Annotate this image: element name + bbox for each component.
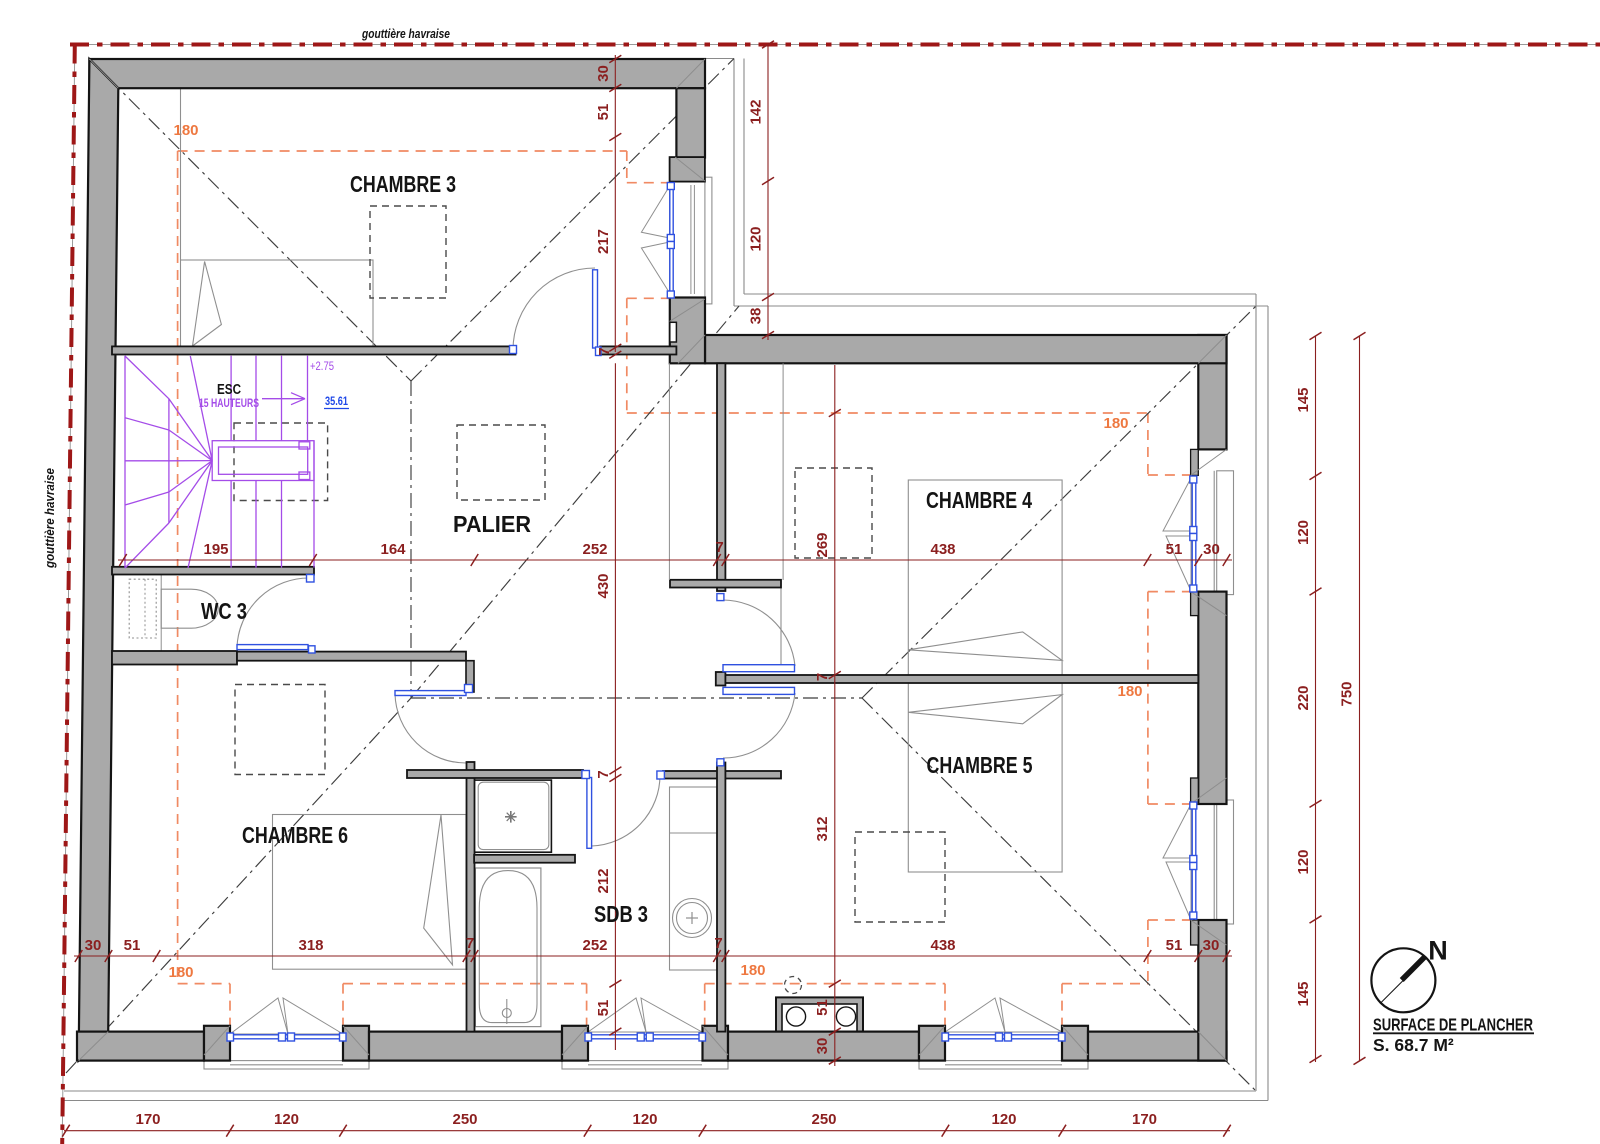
svg-text:195: 195	[203, 541, 228, 558]
svg-text:N: N	[1428, 936, 1448, 966]
svg-text:30: 30	[814, 1038, 831, 1055]
svg-text:430: 430	[595, 573, 612, 598]
svg-text:170: 170	[135, 1111, 160, 1128]
svg-text:38: 38	[748, 308, 765, 325]
svg-text:750: 750	[1339, 681, 1356, 706]
svg-text:120: 120	[274, 1111, 299, 1128]
svg-text:212: 212	[595, 868, 612, 893]
svg-text:30: 30	[1203, 541, 1220, 558]
svg-text:51: 51	[814, 999, 831, 1016]
svg-text:180: 180	[740, 962, 765, 979]
svg-text:252: 252	[582, 937, 607, 954]
svg-text:145: 145	[1295, 981, 1312, 1006]
svg-text:CHAMBRE 5: CHAMBRE 5	[927, 752, 1033, 778]
svg-text:180: 180	[1103, 415, 1128, 432]
svg-text:318: 318	[298, 937, 323, 954]
svg-text:252: 252	[582, 541, 607, 558]
svg-text:CHAMBRE 4: CHAMBRE 4	[926, 487, 1032, 513]
svg-text:7: 7	[715, 539, 723, 556]
svg-text:120: 120	[1295, 520, 1312, 545]
svg-text:51: 51	[1166, 937, 1183, 954]
svg-text:250: 250	[811, 1111, 836, 1128]
svg-text:180: 180	[173, 122, 198, 139]
svg-text:gouttière havraise: gouttière havraise	[361, 26, 450, 41]
svg-text:7: 7	[595, 770, 612, 778]
svg-text:120: 120	[1295, 849, 1312, 874]
svg-text:145: 145	[1295, 387, 1312, 412]
svg-text:217: 217	[595, 229, 612, 254]
svg-text:+2.75: +2.75	[310, 361, 334, 373]
svg-text:51: 51	[1166, 541, 1183, 558]
svg-text:120: 120	[991, 1111, 1016, 1128]
svg-text:250: 250	[452, 1111, 477, 1128]
svg-text:269: 269	[814, 532, 831, 557]
svg-text:7: 7	[596, 347, 613, 355]
svg-text:438: 438	[930, 937, 955, 954]
svg-text:CHAMBRE 6: CHAMBRE 6	[242, 822, 348, 848]
svg-text:35.61: 35.61	[325, 394, 348, 408]
svg-text:312: 312	[814, 816, 831, 841]
svg-text:7: 7	[814, 673, 831, 681]
svg-text:51: 51	[124, 937, 141, 954]
svg-text:30: 30	[85, 937, 102, 954]
svg-text:120: 120	[632, 1111, 657, 1128]
svg-text:gouttière havraise: gouttière havraise	[42, 468, 57, 569]
svg-text:30: 30	[595, 65, 612, 82]
svg-text:438: 438	[930, 541, 955, 558]
svg-text:30: 30	[1203, 937, 1220, 954]
svg-text:CHAMBRE 3: CHAMBRE 3	[350, 171, 456, 197]
svg-text:51: 51	[595, 1000, 612, 1017]
svg-text:SURFACE DE PLANCHER: SURFACE DE PLANCHER	[1373, 1015, 1533, 1035]
svg-text:142: 142	[748, 99, 765, 124]
svg-text:7: 7	[714, 935, 722, 952]
svg-text:ESC: ESC	[217, 382, 241, 398]
svg-text:WC 3: WC 3	[201, 598, 247, 624]
svg-text:170: 170	[1132, 1111, 1157, 1128]
svg-text:180: 180	[1117, 683, 1142, 700]
svg-text:PALIER: PALIER	[453, 511, 531, 537]
svg-text:164: 164	[380, 541, 406, 558]
svg-text:120: 120	[748, 226, 765, 251]
svg-text:SDB 3: SDB 3	[594, 901, 648, 927]
svg-text:7: 7	[466, 935, 474, 952]
svg-text:220: 220	[1295, 685, 1312, 710]
svg-text:180: 180	[168, 964, 193, 981]
svg-text:51: 51	[595, 104, 612, 121]
svg-text:S. 68.7 M²: S. 68.7 M²	[1373, 1035, 1454, 1055]
svg-text:15 HAUTEURS: 15 HAUTEURS	[199, 398, 259, 410]
